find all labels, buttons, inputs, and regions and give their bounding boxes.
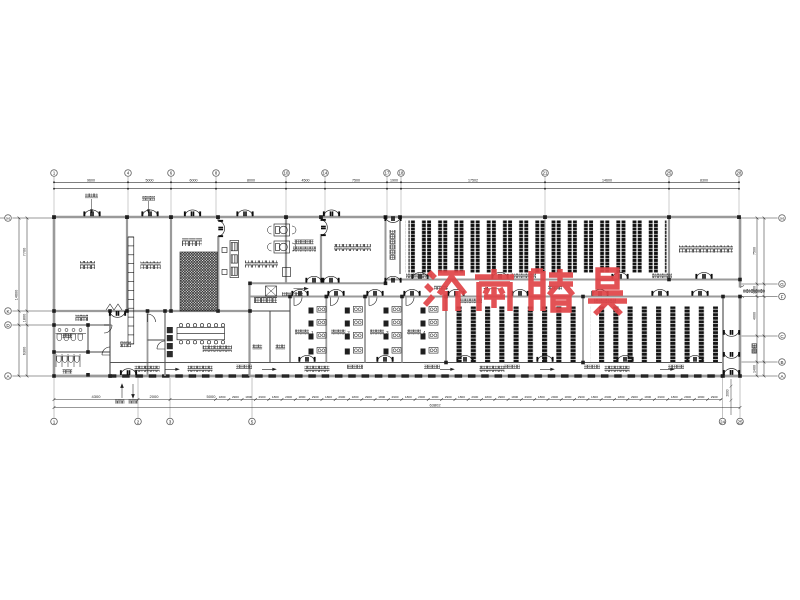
svg-text:1800: 1800 [618,395,625,399]
svg-text:2900: 2900 [498,395,505,399]
svg-text:1800: 1800 [697,395,704,399]
svg-text:2900: 2900 [285,395,292,399]
svg-text:4: 4 [423,330,426,335]
svg-text:1800: 1800 [272,395,279,399]
svg-text:2900: 2900 [711,395,718,399]
svg-text:1800: 1800 [298,395,305,399]
svg-text:2900: 2900 [445,395,452,399]
svg-text:2: 2 [347,330,350,335]
svg-text:1800: 1800 [671,395,678,399]
svg-text:4500: 4500 [302,178,310,182]
svg-text:7500: 7500 [352,178,360,182]
svg-text:1800: 1800 [644,395,651,399]
svg-text:2900: 2900 [578,395,585,399]
svg-text:4300: 4300 [92,394,102,399]
svg-text:2900: 2900 [312,395,319,399]
svg-text:G: G [780,282,784,287]
svg-text:1800: 1800 [564,395,571,399]
svg-text:9600: 9600 [87,178,95,182]
svg-text:1: 1 [311,330,314,335]
svg-text:1800: 1800 [511,395,518,399]
svg-text:1800: 1800 [325,395,332,399]
svg-text:5: 5 [251,419,254,424]
svg-text:25: 25 [737,419,743,424]
svg-text:4000: 4000 [753,312,757,320]
svg-text:2900: 2900 [525,395,532,399]
svg-text:1800: 1800 [23,314,27,322]
svg-text:2900: 2900 [259,395,266,399]
svg-text:2900: 2900 [365,395,372,399]
svg-text:3: 3 [169,419,172,424]
svg-text:2900: 2900 [418,395,425,399]
svg-text:1800: 1800 [458,395,465,399]
svg-text:1800: 1800 [245,395,252,399]
svg-text:21: 21 [543,171,548,176]
svg-text:24: 24 [720,419,726,424]
svg-text:2900: 2900 [338,395,345,399]
svg-text:14600: 14600 [15,290,19,301]
svg-text:3: 3 [386,330,389,335]
svg-text:7700: 7700 [23,248,27,256]
svg-text:H: H [780,216,783,221]
svg-text:5000: 5000 [146,178,154,182]
svg-text:17502: 17502 [468,178,478,182]
svg-text:6300: 6300 [23,347,27,355]
svg-text:2900: 2900 [471,395,478,399]
svg-text:14600: 14600 [602,178,612,182]
svg-text:7500: 7500 [753,247,757,255]
svg-text:6000: 6000 [190,178,198,182]
svg-text:25: 25 [667,171,672,176]
svg-text:F: F [781,294,784,299]
svg-text:2900: 2900 [232,395,239,399]
svg-text:1800: 1800 [485,395,492,399]
svg-text:B: B [780,360,783,365]
svg-text:2900: 2900 [604,395,611,399]
svg-text:2: 2 [137,419,140,424]
svg-text:63802: 63802 [429,402,441,407]
svg-text:28: 28 [737,171,742,176]
svg-text:1800: 1800 [219,395,226,399]
svg-text:1800: 1800 [591,395,598,399]
svg-text:2900: 2900 [551,395,558,399]
svg-text:8000: 8000 [247,178,255,182]
svg-text:2900: 2900 [658,395,665,399]
svg-text:1: 1 [53,419,56,424]
svg-text:2000: 2000 [150,394,160,399]
svg-text:1800: 1800 [405,395,412,399]
svg-text:2000: 2000 [726,389,730,396]
svg-text:18: 18 [399,171,404,176]
svg-text:1800: 1800 [538,395,545,399]
svg-text:2900: 2900 [631,395,638,399]
svg-text:14: 14 [323,171,328,176]
svg-text:1400: 1400 [753,365,757,373]
svg-text:10: 10 [284,171,289,176]
svg-text:2900: 2900 [684,395,691,399]
svg-text:2900: 2900 [392,395,399,399]
svg-text:1800: 1800 [378,395,385,399]
svg-text:H: H [6,216,9,221]
svg-text:5000: 5000 [207,394,217,399]
svg-text:8300: 8300 [700,178,708,182]
svg-text:17: 17 [385,171,390,176]
svg-text:1800: 1800 [431,395,438,399]
svg-text:1900: 1900 [390,178,398,182]
svg-text:1800: 1800 [352,395,359,399]
